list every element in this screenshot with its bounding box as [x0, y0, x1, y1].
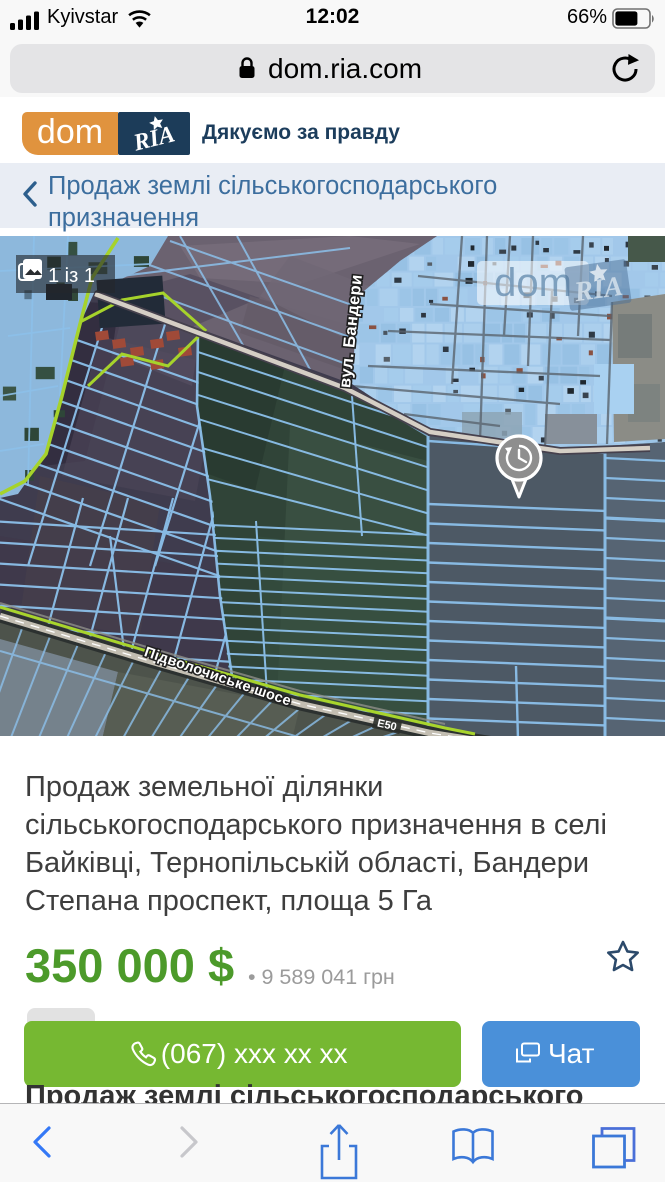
- svg-text:1 із 1: 1 із 1: [48, 265, 95, 287]
- svg-text:dom: dom: [494, 261, 572, 305]
